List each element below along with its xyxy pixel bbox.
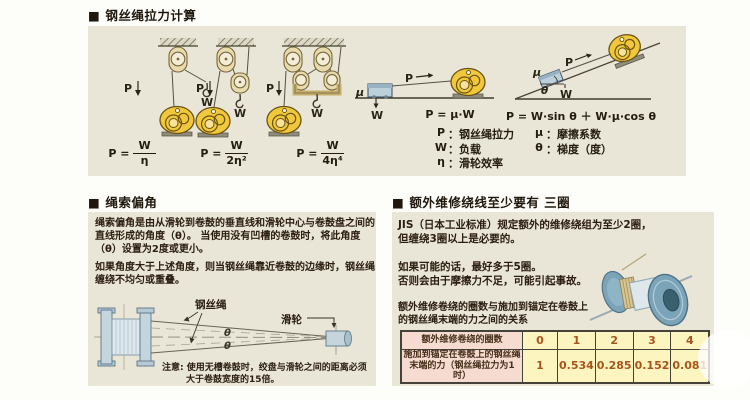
- sheave-label-pointer: [307, 318, 337, 328]
- p-label: P: [196, 82, 204, 95]
- pulley-diagram-2: P W: [196, 38, 256, 137]
- fixed-pulley-icon: [217, 47, 235, 72]
- fleet-para1-line3: （θ）设置为2度或更小。: [95, 243, 209, 256]
- theta-upper-label: θ: [224, 328, 231, 339]
- legend-mu: μ：摩擦系数: [532, 126, 601, 142]
- mu-label: μ: [355, 86, 364, 99]
- hook-icon: [313, 94, 320, 108]
- fixed-pulley-icon: [284, 47, 302, 72]
- rope-label-pointers: [184, 312, 203, 344]
- fleet-para1-line2: 直线形成的角度（θ）。 当使用没有凹槽的卷鼓时，将此角度: [95, 230, 360, 243]
- load-block-icon: [368, 84, 392, 99]
- flat-formula: P = μ·W: [410, 108, 490, 121]
- wraps-para3-line1: 额外维修卷绕的圈数与施加到锚定在卷鼓上: [398, 301, 588, 314]
- mu-label: μ: [532, 66, 541, 79]
- hoist-icon: [267, 107, 301, 137]
- table-row-wraps: 额外维修卷绕的圈数 0 1 2 3 4: [401, 331, 709, 350]
- fleet-para2-line2: 缠绕不均匀或重叠。: [95, 274, 185, 287]
- extra-wraps-table: 额外维修卷绕的圈数 0 1 2 3 4 施加到锚定在卷鼓上的钢丝绳 末端的力（钢…: [400, 330, 710, 384]
- drum-icon: [94, 304, 160, 370]
- rope-end: [622, 254, 646, 270]
- pulley-diagram-3: P W: [266, 38, 346, 136]
- incline-formula: P = W·sin θ ＋ W·μ·cos θ: [506, 108, 656, 124]
- row2-cell-1: 0.534: [558, 350, 596, 383]
- formula-2: P = W2η²: [186, 140, 262, 167]
- hoist-icon: [605, 30, 645, 69]
- row1-cell-0: 0: [523, 331, 558, 350]
- fleet-para2-line1: 如果角度大于上述角度，则当钢丝绳靠近卷鼓的边缘时，钢丝绳: [95, 261, 375, 274]
- sheave-label: 滑轮: [281, 312, 302, 327]
- w-label: W: [234, 107, 246, 120]
- hook-icon: [236, 94, 243, 108]
- hoist-icon: [451, 69, 485, 99]
- hoist-icon: [160, 107, 194, 137]
- incline-diagram: μ θ W P: [515, 30, 660, 101]
- hoist-icon: [196, 108, 230, 138]
- movable-pulley-icon: [231, 73, 249, 93]
- spool-illustration: [580, 248, 700, 333]
- section3-title-text: 额外维修绕线至少要有 三圈: [409, 195, 570, 210]
- row1-cell-3: 3: [633, 331, 671, 350]
- hook-icon: [203, 83, 210, 97]
- theta-lower-label: θ: [224, 341, 231, 352]
- section1-bullet: ■: [88, 8, 100, 23]
- section3-title: ■额外维修绕线至少要有 三圈: [392, 192, 570, 211]
- section2-title-text: 绳索偏角: [105, 195, 157, 210]
- wraps-para2-line1: 如果可能的话，最好多于5圈。: [398, 261, 542, 274]
- section1-title-text: 钢丝绳拉力计算: [105, 8, 196, 23]
- ceiling-hatch: [160, 38, 196, 46]
- down-arrow-icon: [135, 90, 141, 96]
- legend-p: P：钢丝绳拉力: [434, 126, 514, 142]
- row1-header-cell: 额外维修卷绕的圈数: [401, 331, 523, 350]
- row1-cell-2: 2: [595, 331, 633, 350]
- right-arrow-icon: [428, 73, 434, 78]
- w-label: W: [371, 109, 383, 122]
- wraps-para2-line2: 否则会由于摩擦力不足，可能引起事故。: [398, 275, 587, 288]
- p-label: P: [565, 56, 573, 69]
- legend-theta: θ：梯度（度）: [532, 141, 612, 157]
- wraps-para1-line1: JIS（日本工业标准）规定额外的维修绕组为至少2圈，: [398, 219, 652, 232]
- formula-1: P = Wη: [100, 140, 164, 167]
- page-curl-highlight: [698, 330, 750, 388]
- fleet-note-line2: 大于卷鼓宽度的15倍。: [186, 372, 280, 385]
- legend-eta: η：滑轮效率: [434, 155, 503, 171]
- row1-cell-1: 1: [558, 331, 596, 350]
- p-label: P: [266, 82, 274, 95]
- row2-cell-2: 0.285: [595, 350, 633, 383]
- sheave-icon: [326, 325, 352, 355]
- fixed-pulley-icon: [314, 47, 332, 72]
- p-label: P: [405, 72, 413, 85]
- w-label: W: [560, 88, 572, 101]
- wraps-para1-line2: 但缠绕3圈以上是必要的。: [398, 233, 521, 246]
- section2-title: ■绳索偏角: [88, 192, 157, 211]
- row2-cell-3: 0.152: [633, 350, 671, 383]
- down-arrow-icon: [374, 104, 379, 109]
- row2-cell-0: 1: [523, 350, 558, 383]
- table-row-force: 施加到锚定在卷鼓上的钢丝绳 末端的力（钢丝绳拉力为1时） 1 0.534 0.2…: [401, 350, 709, 383]
- fleet-para1-line1: 绳索偏角是由从滑轮到卷鼓的垂直线和滑轮中心与卷鼓盘之间的: [95, 217, 375, 230]
- p-label: P: [124, 82, 132, 95]
- section1-title: ■钢丝绳拉力计算: [88, 5, 196, 24]
- down-arrow-icon: [276, 90, 282, 96]
- fixed-pulley-icon: [169, 47, 187, 72]
- wire-rope-label: 钢丝绳: [195, 297, 227, 312]
- row2-header-cell: 施加到锚定在卷鼓上的钢丝绳 末端的力（钢丝绳拉力为1时）: [401, 350, 523, 383]
- w-label: W: [311, 107, 323, 120]
- formula-3: P = W4η⁴: [282, 140, 358, 167]
- wraps-para3-line2: 的钢丝绳末端的力之间的关系: [398, 314, 528, 327]
- theta-label: θ: [541, 85, 548, 97]
